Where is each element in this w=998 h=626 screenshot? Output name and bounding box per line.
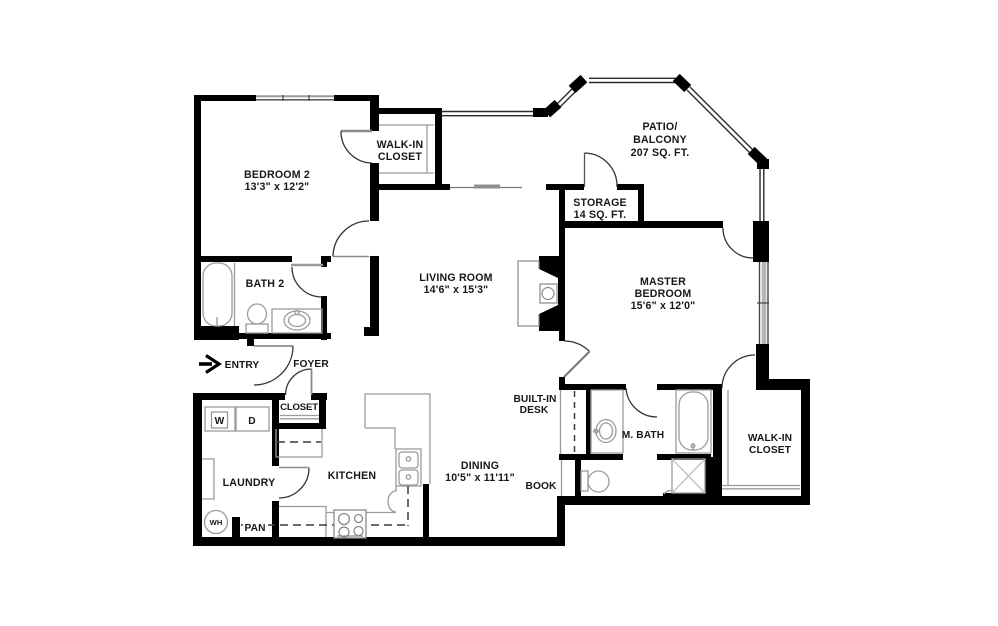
- svg-text:PATIO/: PATIO/: [643, 121, 678, 133]
- svg-text:D: D: [248, 416, 255, 427]
- svg-text:STORAGE: STORAGE: [573, 197, 627, 209]
- svg-text:DESK: DESK: [520, 405, 549, 416]
- svg-text:BOOK: BOOK: [526, 481, 558, 492]
- svg-text:BEDROOM: BEDROOM: [635, 288, 692, 300]
- svg-text:ENTRY: ENTRY: [225, 360, 260, 371]
- svg-text:13'3" x 12'2": 13'3" x 12'2": [245, 181, 310, 193]
- svg-text:WALK-IN: WALK-IN: [748, 433, 792, 444]
- svg-text:LAUNDRY: LAUNDRY: [223, 477, 276, 489]
- svg-text:WH: WH: [210, 518, 223, 527]
- svg-text:KITCHEN: KITCHEN: [328, 470, 376, 482]
- svg-text:BATH 2: BATH 2: [246, 278, 285, 290]
- svg-text:CLOSET: CLOSET: [378, 151, 422, 163]
- svg-text:FOYER: FOYER: [293, 359, 329, 370]
- svg-text:CLOSET: CLOSET: [280, 402, 318, 413]
- svg-text:MASTER: MASTER: [640, 276, 686, 288]
- svg-text:BALCONY: BALCONY: [633, 134, 687, 146]
- svg-text:DINING: DINING: [461, 460, 499, 472]
- svg-text:BUILT-IN: BUILT-IN: [513, 394, 556, 405]
- svg-text:LIVING ROOM: LIVING ROOM: [419, 272, 492, 284]
- svg-text:BEDROOM 2: BEDROOM 2: [244, 169, 310, 181]
- svg-text:WALK-IN: WALK-IN: [377, 139, 424, 151]
- svg-text:M. BATH: M. BATH: [622, 430, 664, 441]
- svg-text:PAN: PAN: [244, 523, 265, 534]
- svg-text:14'6" x 15'3": 14'6" x 15'3": [424, 284, 489, 296]
- svg-text:CLOSET: CLOSET: [749, 445, 792, 456]
- svg-text:10'5" x 11'11": 10'5" x 11'11": [445, 472, 515, 484]
- svg-text:15'6" x 12'0": 15'6" x 12'0": [631, 300, 696, 312]
- svg-text:14 SQ. FT.: 14 SQ. FT.: [574, 209, 627, 221]
- svg-text:207 SQ. FT.: 207 SQ. FT.: [631, 147, 690, 159]
- svg-text:W: W: [215, 416, 225, 427]
